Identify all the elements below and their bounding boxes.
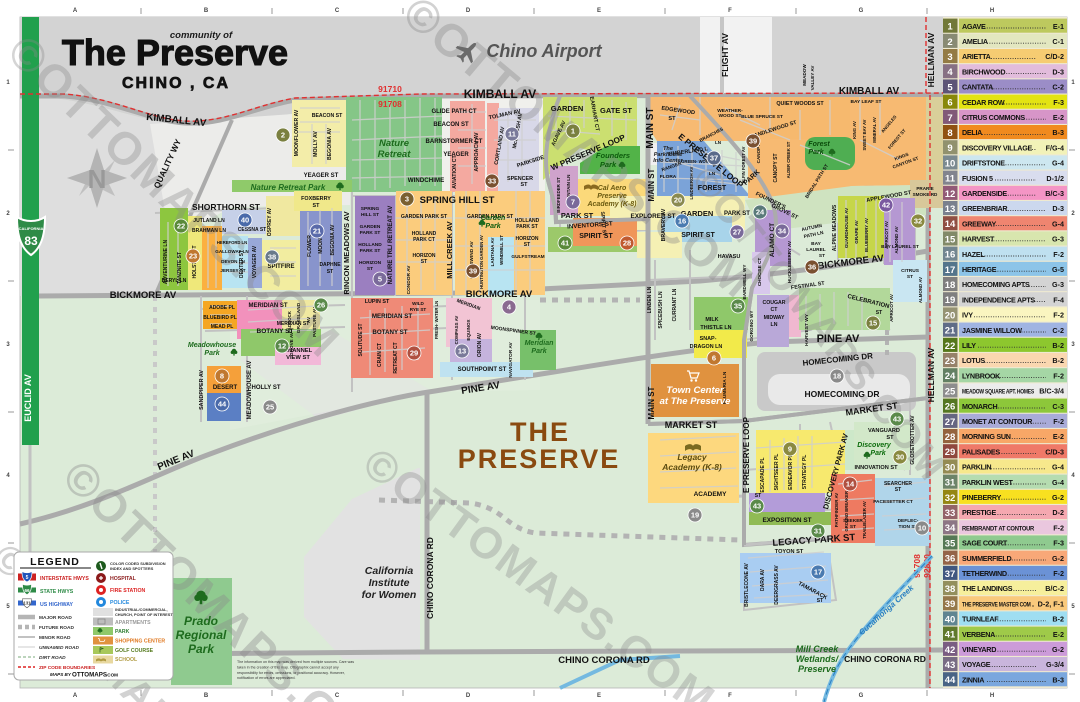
svg-text:BAY LAUREL ST: BAY LAUREL ST bbox=[881, 244, 919, 250]
svg-text:SPICEBUSH LN: SPICEBUSH LN bbox=[658, 291, 664, 329]
svg-text:MILK: MILK bbox=[705, 317, 718, 323]
svg-text:A: A bbox=[73, 8, 78, 14]
svg-text:41: 41 bbox=[561, 239, 569, 248]
svg-text:G-3/4: G-3/4 bbox=[1046, 660, 1064, 669]
svg-text:KING AV: KING AV bbox=[852, 121, 857, 139]
svg-text:B/C-3/4: B/C-3/4 bbox=[1039, 387, 1064, 396]
svg-text:B-2: B-2 bbox=[1052, 356, 1064, 365]
svg-text:F-4: F-4 bbox=[1053, 295, 1064, 304]
svg-text:F-2: F-2 bbox=[1053, 371, 1064, 380]
svg-text:DESERT: DESERT bbox=[213, 385, 238, 391]
svg-text:DISCOVERY VILLAGE: DISCOVERY VILLAGE bbox=[962, 143, 1032, 152]
svg-text:TRAILBLAZER AV: TRAILBLAZER AV bbox=[862, 501, 867, 539]
svg-text:LINDBERGH AV: LINDBERGH AV bbox=[689, 166, 694, 199]
svg-text:MAIN ST: MAIN ST bbox=[647, 386, 656, 419]
svg-text:POLICE: POLICE bbox=[110, 600, 130, 606]
svg-text:MAJOR ROAD: MAJOR ROAD bbox=[39, 615, 72, 621]
svg-text:16: 16 bbox=[678, 217, 686, 226]
svg-text:PARK ST: PARK ST bbox=[360, 248, 381, 254]
svg-text:3: 3 bbox=[947, 52, 952, 63]
svg-text:MAIN ST: MAIN ST bbox=[647, 168, 656, 201]
svg-text:28: 28 bbox=[945, 432, 956, 443]
svg-text:HOLLY ST: HOLLY ST bbox=[251, 385, 280, 391]
svg-text:12: 12 bbox=[278, 342, 286, 351]
svg-text:COUGAR: COUGAR bbox=[762, 300, 785, 306]
svg-text:LINDEN LN: LINDEN LN bbox=[647, 286, 653, 313]
svg-text:9: 9 bbox=[947, 143, 952, 154]
svg-text:BLUEBIRD PL: BLUEBIRD PL bbox=[203, 315, 237, 321]
svg-text:B-3: B-3 bbox=[1052, 675, 1064, 684]
svg-text:for Women: for Women bbox=[362, 589, 417, 601]
svg-text:Park: Park bbox=[485, 223, 501, 230]
svg-text:MAIN ST: MAIN ST bbox=[645, 107, 656, 148]
svg-text:VALLEY AV: VALLEY AV bbox=[810, 65, 815, 91]
svg-text:KIMBALL AV: KIMBALL AV bbox=[464, 87, 536, 101]
svg-text:SOLITUDE ST: SOLITUDE ST bbox=[358, 323, 364, 356]
svg-text:16: 16 bbox=[945, 250, 956, 261]
svg-text:43: 43 bbox=[753, 502, 761, 511]
svg-text:37: 37 bbox=[710, 154, 718, 163]
svg-text:ST: ST bbox=[886, 435, 894, 441]
svg-text:C-2: C-2 bbox=[1052, 83, 1064, 92]
svg-text:SNAP-: SNAP- bbox=[700, 336, 717, 342]
svg-text:HUCKLEBERRY AV: HUCKLEBERRY AV bbox=[787, 240, 792, 283]
svg-text:32: 32 bbox=[914, 217, 922, 226]
svg-text:DAPHNE: DAPHNE bbox=[319, 262, 341, 268]
svg-text:HEREFORD LN: HEREFORD LN bbox=[217, 240, 247, 245]
svg-text:Discovery: Discovery bbox=[857, 442, 892, 449]
svg-text:PRESERVE: PRESERVE bbox=[458, 444, 621, 474]
svg-text:FRESH- WATER LN: FRESH- WATER LN bbox=[434, 301, 439, 339]
svg-text:32: 32 bbox=[945, 493, 956, 504]
svg-text:OTTOMAPS: OTTOMAPS bbox=[72, 672, 107, 679]
svg-text:25: 25 bbox=[266, 403, 274, 412]
svg-text:SCHOOL: SCHOOL bbox=[115, 657, 138, 663]
svg-text:23: 23 bbox=[189, 252, 197, 261]
svg-text:G-2: G-2 bbox=[1052, 493, 1064, 502]
svg-text:Wetlands/: Wetlands/ bbox=[796, 654, 840, 664]
svg-text:BAY LEAF ST: BAY LEAF ST bbox=[851, 99, 882, 105]
svg-text:QUIET WOODS ST: QUIET WOODS ST bbox=[776, 101, 824, 107]
svg-text:SPITFIRE: SPITFIRE bbox=[267, 264, 294, 270]
svg-text:MOON: MOON bbox=[318, 238, 324, 254]
svg-text:EXPOSITION ST: EXPOSITION ST bbox=[762, 517, 811, 524]
svg-text:GOLF COURSE: GOLF COURSE bbox=[115, 648, 154, 654]
svg-text:RINCON MEADOWS AV: RINCON MEADOWS AV bbox=[342, 211, 351, 294]
svg-text:ST: ST bbox=[850, 524, 856, 530]
svg-text:GARDEN: GARDEN bbox=[551, 104, 584, 113]
svg-text:at The Preserve: at The Preserve bbox=[660, 396, 731, 407]
svg-text:FIRE STATION: FIRE STATION bbox=[110, 588, 146, 594]
svg-text:5: 5 bbox=[947, 82, 953, 93]
svg-text:TURNLEAF: TURNLEAF bbox=[962, 615, 999, 624]
svg-text:HOMECOMING DR: HOMECOMING DR bbox=[804, 389, 879, 399]
svg-text:91710: 91710 bbox=[378, 84, 402, 94]
svg-text:2: 2 bbox=[947, 37, 952, 48]
svg-text:ORION AV: ORION AV bbox=[477, 332, 483, 357]
svg-text:MAPS BY: MAPS BY bbox=[50, 672, 72, 677]
svg-text:PARKLIN: PARKLIN bbox=[962, 463, 991, 472]
svg-text:HORIZON: HORIZON bbox=[359, 260, 382, 266]
svg-text:CANOPY ST: CANOPY ST bbox=[773, 153, 779, 182]
svg-text:26: 26 bbox=[945, 402, 956, 413]
svg-text:G-3: G-3 bbox=[1052, 235, 1064, 244]
svg-text:THE PRESERVE MASTER COM ..: THE PRESERVE MASTER COM .. bbox=[962, 601, 1034, 608]
svg-text:ST: ST bbox=[521, 182, 529, 188]
svg-text:SAGE COURT: SAGE COURT bbox=[962, 539, 1008, 548]
svg-text:13: 13 bbox=[945, 204, 956, 215]
svg-text:ELFIN FOREST AV: ELFIN FOREST AV bbox=[741, 146, 746, 183]
svg-text:6: 6 bbox=[712, 354, 716, 363]
svg-text:VERBENA: VERBENA bbox=[962, 630, 995, 639]
svg-text:Prado: Prado bbox=[184, 614, 218, 628]
svg-text:E-2: E-2 bbox=[1053, 432, 1064, 441]
svg-text:FOXBERRY: FOXBERRY bbox=[301, 196, 331, 202]
svg-text:30: 30 bbox=[896, 453, 904, 462]
svg-text:MIDWAY: MIDWAY bbox=[764, 315, 785, 321]
svg-text:35: 35 bbox=[945, 538, 956, 549]
svg-text:G-4: G-4 bbox=[1052, 463, 1064, 472]
svg-text:C/D-3: C/D-3 bbox=[1045, 447, 1064, 456]
svg-text:GLOBETROTTER AV: GLOBETROTTER AV bbox=[910, 415, 916, 465]
svg-text:GATE ST: GATE ST bbox=[600, 106, 632, 115]
svg-text:C-2: C-2 bbox=[1052, 326, 1064, 335]
svg-text:91708: 91708 bbox=[378, 99, 402, 109]
svg-text:G-4: G-4 bbox=[1052, 478, 1064, 487]
svg-text:THE: THE bbox=[510, 417, 570, 447]
svg-text:ZINNIA: ZINNIA bbox=[962, 675, 984, 684]
svg-text:12: 12 bbox=[945, 189, 956, 200]
svg-text:.COM: .COM bbox=[106, 673, 118, 678]
svg-text:24: 24 bbox=[756, 208, 765, 217]
svg-text:Regional: Regional bbox=[176, 628, 227, 642]
svg-text:CHINO CORONA RD: CHINO CORONA RD bbox=[425, 537, 435, 619]
svg-text:H: H bbox=[990, 693, 994, 699]
svg-text:Institute: Institute bbox=[369, 577, 410, 589]
svg-text:Town Center: Town Center bbox=[666, 385, 724, 396]
svg-text:9: 9 bbox=[788, 445, 792, 454]
svg-text:F-2: F-2 bbox=[1053, 250, 1064, 259]
svg-text:GUARDHOUSE AV: GUARDHOUSE AV bbox=[844, 207, 849, 248]
svg-text:27: 27 bbox=[733, 228, 741, 237]
svg-text:WOOD ST: WOOD ST bbox=[719, 113, 742, 119]
svg-text:17: 17 bbox=[814, 568, 822, 577]
svg-text:CHOCISE CT: CHOCISE CT bbox=[757, 258, 762, 287]
svg-text:REMBRANDT AT CONTOUR: REMBRANDT AT CONTOUR bbox=[962, 525, 1035, 532]
svg-text:PARK: PARK bbox=[115, 629, 130, 635]
svg-text:Retreat: Retreat bbox=[378, 149, 412, 160]
svg-text:26: 26 bbox=[317, 301, 325, 310]
svg-text:131: 131 bbox=[24, 601, 32, 606]
svg-text:Garden: Garden bbox=[481, 215, 506, 222]
svg-text:D: D bbox=[466, 8, 471, 14]
svg-text:ST: ST bbox=[817, 598, 823, 604]
svg-text:ARIETTA: ARIETTA bbox=[962, 52, 991, 61]
svg-text:CANTATA: CANTATA bbox=[962, 83, 993, 92]
svg-text:BLUE SPRUCE ST: BLUE SPRUCE ST bbox=[741, 114, 783, 120]
svg-text:Park: Park bbox=[188, 642, 215, 656]
svg-text:Chino Airport: Chino Airport bbox=[486, 41, 602, 61]
svg-text:37: 37 bbox=[945, 569, 956, 580]
svg-text:1: 1 bbox=[947, 22, 953, 33]
svg-text:CT: CT bbox=[771, 307, 779, 313]
svg-text:CHINO CORONA RD: CHINO CORONA RD bbox=[558, 655, 650, 666]
svg-text:SHOPPING CENTER: SHOPPING CENTER bbox=[115, 639, 165, 645]
svg-text:G: G bbox=[859, 693, 864, 699]
svg-text:Preserve: Preserve bbox=[597, 193, 627, 200]
svg-text:EUCLID AV: EUCLID AV bbox=[23, 374, 33, 422]
svg-text:BICKMORE AV: BICKMORE AV bbox=[466, 289, 533, 300]
svg-text:20: 20 bbox=[945, 310, 956, 321]
svg-text:21: 21 bbox=[945, 326, 956, 337]
svg-text:VANGUARD: VANGUARD bbox=[868, 428, 900, 434]
svg-text:30: 30 bbox=[945, 462, 956, 473]
svg-text:10: 10 bbox=[918, 524, 926, 533]
svg-text:SPIRIT ST: SPIRIT ST bbox=[579, 233, 613, 240]
svg-text:ST: ST bbox=[421, 259, 427, 265]
svg-text:MERIDIAN ST: MERIDIAN ST bbox=[372, 313, 412, 320]
svg-text:LOTUS: LOTUS bbox=[962, 356, 985, 365]
svg-text:11: 11 bbox=[945, 174, 956, 185]
svg-text:23: 23 bbox=[945, 356, 956, 367]
svg-text:2: 2 bbox=[281, 131, 285, 140]
svg-text:HELLMAN AV: HELLMAN AV bbox=[926, 347, 936, 402]
svg-text:39: 39 bbox=[945, 599, 956, 610]
svg-text:5: 5 bbox=[26, 575, 29, 581]
svg-text:LN: LN bbox=[715, 140, 722, 145]
svg-text:28: 28 bbox=[623, 239, 631, 248]
svg-text:INDEX AND SPOTTERS: INDEX AND SPOTTERS bbox=[110, 566, 154, 571]
svg-text:DEFLEC-: DEFLEC- bbox=[898, 518, 919, 524]
svg-text:CHINO CORONA RD: CHINO CORONA RD bbox=[844, 654, 926, 664]
svg-text:LUPIN ST: LUPIN ST bbox=[365, 299, 390, 305]
svg-text:CRAIN CT: CRAIN CT bbox=[377, 343, 383, 367]
svg-text:PALISADES: PALISADES bbox=[962, 447, 1000, 456]
svg-text:ST: ST bbox=[907, 274, 913, 280]
svg-text:35: 35 bbox=[734, 302, 742, 311]
svg-text:SWEET BAY AV: SWEET BAY AV bbox=[862, 119, 867, 150]
svg-text:FOREST: FOREST bbox=[698, 185, 727, 192]
svg-text:25: 25 bbox=[945, 386, 956, 397]
svg-text:PATHFINDER AV: PATHFINDER AV bbox=[834, 493, 839, 528]
svg-text:HUNTINGTON GARDEN AV: HUNTINGTON GARDEN AV bbox=[479, 235, 484, 289]
svg-text:PARK ST: PARK ST bbox=[724, 211, 750, 217]
svg-text:PARK CT: PARK CT bbox=[413, 237, 435, 243]
svg-text:31: 31 bbox=[814, 527, 822, 536]
svg-text:ST: ST bbox=[819, 253, 825, 259]
svg-text:G-3: G-3 bbox=[1052, 280, 1064, 289]
svg-text:SPRING: SPRING bbox=[361, 206, 380, 212]
svg-text:22: 22 bbox=[177, 222, 185, 231]
svg-text:F/G-4: F/G-4 bbox=[1046, 143, 1064, 152]
svg-text:AGAVE: AGAVE bbox=[962, 22, 986, 31]
svg-text:TETHERWIND: TETHERWIND bbox=[962, 569, 1007, 578]
svg-text:FUSION 5: FUSION 5 bbox=[962, 174, 993, 183]
svg-text:BEACON ST: BEACON ST bbox=[433, 122, 469, 128]
svg-text:F-2: F-2 bbox=[1053, 417, 1064, 426]
svg-text:5: 5 bbox=[378, 275, 382, 284]
svg-text:34: 34 bbox=[945, 523, 956, 534]
svg-text:10: 10 bbox=[945, 158, 956, 169]
svg-text:PRESTIGE: PRESTIGE bbox=[962, 508, 996, 517]
svg-text:MOLLY AV: MOLLY AV bbox=[313, 131, 319, 157]
svg-text:CONDOR AV: CONDOR AV bbox=[406, 265, 412, 295]
svg-text:DRAGON LN: DRAGON LN bbox=[690, 344, 723, 350]
svg-text:The information on this map wa: The information on this map was derived … bbox=[237, 660, 354, 664]
svg-text:OSPREY AV: OSPREY AV bbox=[267, 207, 273, 236]
svg-text:D-3: D-3 bbox=[1052, 67, 1064, 76]
svg-text:GARDENSIDE: GARDENSIDE bbox=[962, 189, 1007, 198]
svg-text:PARKLIN WEST: PARKLIN WEST bbox=[962, 478, 1013, 487]
svg-text:STRATEGY PL: STRATEGY PL bbox=[802, 455, 808, 490]
svg-text:ST: ST bbox=[327, 269, 333, 275]
svg-text:GREEWAY: GREEWAY bbox=[962, 219, 996, 228]
svg-text:CALIFORNIA: CALIFORNIA bbox=[19, 226, 44, 231]
svg-text:G-2: G-2 bbox=[1052, 645, 1064, 654]
svg-text:IVY: IVY bbox=[962, 311, 973, 320]
svg-text:ALPINE MEADOWS: ALPINE MEADOWS bbox=[832, 204, 838, 251]
svg-text:C/D-2: C/D-2 bbox=[1045, 52, 1064, 61]
svg-text:MILL CREEK AV: MILL CREEK AV bbox=[445, 221, 454, 278]
svg-text:JUTLAND LN: JUTLAND LN bbox=[193, 218, 225, 224]
svg-text:ST: ST bbox=[524, 242, 530, 248]
svg-text:40: 40 bbox=[241, 216, 249, 225]
svg-text:THISTLE LN: THISTLE LN bbox=[700, 325, 731, 331]
svg-text:SEEKER: SEEKER bbox=[843, 518, 863, 524]
svg-text:INDEPENDENCE APTS: INDEPENDENCE APTS bbox=[962, 295, 1035, 304]
svg-text:SIGHTSEER PL: SIGHTSEER PL bbox=[774, 454, 780, 491]
svg-text:APARTMENTS: APARTMENTS bbox=[115, 620, 151, 626]
svg-text:THE LANDINGS: THE LANDINGS bbox=[962, 584, 1013, 593]
svg-text:BRAVERY AV: BRAVERY AV bbox=[661, 208, 667, 241]
svg-text:42: 42 bbox=[882, 201, 890, 210]
svg-text:HOSPITAL: HOSPITAL bbox=[110, 576, 137, 582]
svg-text:27: 27 bbox=[945, 417, 956, 428]
svg-text:C-1: C-1 bbox=[1052, 37, 1064, 46]
svg-text:KIMBALL AV: KIMBALL AV bbox=[839, 86, 900, 97]
svg-text:MONET AT CONTOUR: MONET AT CONTOUR bbox=[962, 417, 1033, 426]
svg-text:LN: LN bbox=[709, 171, 716, 177]
svg-text:GARDEN PARK ST: GARDEN PARK ST bbox=[401, 214, 448, 220]
svg-text:VOYAGE: VOYAGE bbox=[962, 660, 991, 669]
svg-text:19: 19 bbox=[691, 511, 699, 520]
svg-text:The Preserve: The Preserve bbox=[62, 32, 288, 73]
svg-text:H: H bbox=[990, 8, 994, 14]
svg-text:HOLLAND: HOLLAND bbox=[358, 242, 382, 248]
svg-text:E: E bbox=[597, 693, 601, 699]
svg-text:D: D bbox=[466, 693, 471, 699]
svg-text:PARK ST: PARK ST bbox=[561, 211, 594, 220]
svg-text:BEGONIA AV: BEGONIA AV bbox=[327, 127, 333, 160]
svg-text:EXPLORER ST: EXPLORER ST bbox=[630, 213, 675, 220]
svg-text:36: 36 bbox=[808, 263, 816, 272]
svg-text:F: F bbox=[728, 693, 732, 699]
svg-text:Meridian: Meridian bbox=[525, 340, 554, 347]
svg-text:COMPASS AV: COMPASS AV bbox=[454, 316, 459, 345]
svg-text:AVIATION CT: AVIATION CT bbox=[452, 154, 458, 188]
svg-text:MERIDIAN ST: MERIDIAN ST bbox=[249, 303, 288, 309]
svg-text:PRARIE: PRARIE bbox=[916, 186, 933, 191]
svg-text:38: 38 bbox=[945, 584, 956, 595]
svg-text:ZIP CODE BOUNDARIES: ZIP CODE BOUNDARIES bbox=[39, 665, 96, 671]
svg-text:FLORA: FLORA bbox=[660, 174, 677, 180]
svg-text:MOONFLOWER AV: MOONFLOWER AV bbox=[294, 109, 300, 156]
svg-text:C: C bbox=[335, 8, 340, 14]
svg-text:WINDCHIME: WINDCHIME bbox=[408, 177, 444, 184]
svg-text:G: G bbox=[859, 8, 864, 14]
svg-text:BOTANY ST: BOTANY ST bbox=[372, 329, 407, 336]
svg-text:SPRING HILL ST: SPRING HILL ST bbox=[420, 195, 495, 206]
svg-text:CHINO , CA: CHINO , CA bbox=[122, 75, 230, 92]
svg-text:E: E bbox=[597, 8, 601, 14]
svg-text:ALAMO CT: ALAMO CT bbox=[769, 223, 776, 257]
svg-text:DELIA: DELIA bbox=[962, 128, 982, 137]
svg-text:39: 39 bbox=[469, 267, 477, 276]
svg-text:29: 29 bbox=[410, 349, 418, 358]
svg-text:24: 24 bbox=[945, 371, 956, 382]
svg-text:NATURE TRL/ RETREAT AV: NATURE TRL/ RETREAT AV bbox=[388, 206, 394, 284]
svg-text:FLOWER: FLOWER bbox=[307, 235, 313, 257]
svg-text:BIRDFEEDER ST: BIRDFEEDER ST bbox=[556, 177, 561, 213]
svg-text:6: 6 bbox=[947, 98, 952, 109]
svg-text:ENDEAVOR PL: ENDEAVOR PL bbox=[788, 454, 794, 490]
svg-text:SHORTHORN ST: SHORTHORN ST bbox=[192, 202, 261, 212]
svg-text:DRIFTSTONE: DRIFTSTONE bbox=[962, 159, 1005, 168]
svg-text:taken in the creation of: taken in the creation of this map. Ottog… bbox=[237, 665, 339, 669]
svg-text:38: 38 bbox=[268, 253, 276, 262]
svg-text:CEDAR ROW: CEDAR ROW bbox=[962, 98, 1005, 107]
svg-text:DIRT ROAD: DIRT ROAD bbox=[39, 655, 66, 661]
svg-text:G-4: G-4 bbox=[1052, 159, 1064, 168]
svg-text:MORNING SUN: MORNING SUN bbox=[962, 432, 1011, 441]
svg-text:39: 39 bbox=[749, 137, 757, 146]
svg-text:17: 17 bbox=[945, 265, 956, 276]
svg-text:GRASSLAND: GRASSLAND bbox=[296, 302, 302, 333]
svg-text:HARVEST: HARVEST bbox=[962, 235, 995, 244]
svg-text:US HIGHWAY: US HIGHWAY bbox=[40, 602, 73, 608]
svg-text:MEADOW: MEADOW bbox=[802, 64, 807, 86]
svg-text:F-2: F-2 bbox=[1053, 523, 1064, 532]
svg-text:44: 44 bbox=[945, 675, 956, 686]
svg-text:responsibility for errors,: responsibility for errors, omissions, or… bbox=[237, 671, 345, 675]
svg-text:APRICOT AV: APRICOT AV bbox=[889, 293, 894, 322]
svg-text:WILD: WILD bbox=[412, 301, 424, 306]
svg-text:LYNBROOK: LYNBROOK bbox=[962, 371, 1001, 380]
svg-text:DEXTER ST: DEXTER ST bbox=[239, 250, 245, 278]
svg-text:11: 11 bbox=[508, 130, 516, 139]
svg-text:31: 31 bbox=[945, 478, 956, 489]
svg-text:44: 44 bbox=[218, 400, 227, 409]
svg-text:21: 21 bbox=[313, 227, 321, 236]
svg-text:Park: Park bbox=[600, 160, 617, 169]
svg-text:D-2, F-1: D-2, F-1 bbox=[1038, 599, 1064, 608]
svg-text:PARK ST: PARK ST bbox=[360, 230, 381, 236]
svg-text:DEERGRASS AV: DEERGRASS AV bbox=[774, 565, 780, 605]
svg-text:19: 19 bbox=[945, 295, 956, 306]
svg-text:CITRUS: CITRUS bbox=[901, 268, 920, 274]
svg-text:Academy (K-8): Academy (K-8) bbox=[586, 201, 637, 208]
svg-text:LEGEND: LEGEND bbox=[30, 556, 80, 568]
svg-text:ST: ST bbox=[895, 487, 901, 493]
svg-text:MINERAL AV: MINERAL AV bbox=[872, 117, 877, 143]
svg-text:D-3: D-3 bbox=[1052, 204, 1064, 213]
svg-text:Park: Park bbox=[870, 450, 886, 457]
svg-text:8: 8 bbox=[947, 128, 952, 139]
svg-text:BLUEBERRY AV: BLUEBERRY AV bbox=[864, 218, 869, 252]
svg-text:C: C bbox=[335, 693, 340, 699]
svg-text:18: 18 bbox=[945, 280, 956, 291]
svg-text:SMOKE RD: SMOKE RD bbox=[913, 192, 938, 197]
